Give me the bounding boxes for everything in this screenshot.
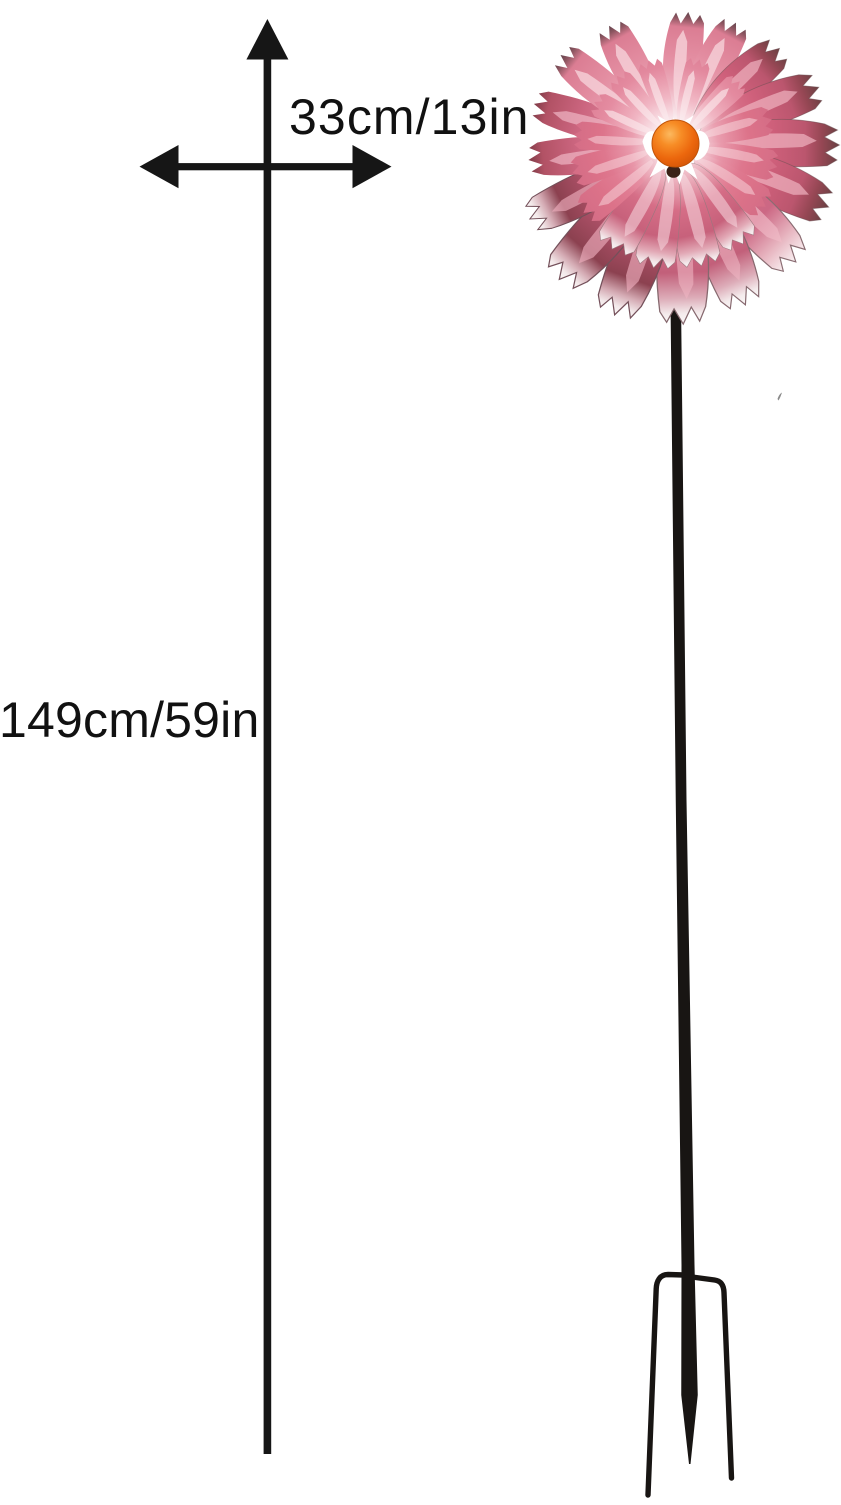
svg-text:33cm/13in: 33cm/13in <box>289 89 530 145</box>
svg-text:149cm/59in: 149cm/59in <box>0 692 260 748</box>
